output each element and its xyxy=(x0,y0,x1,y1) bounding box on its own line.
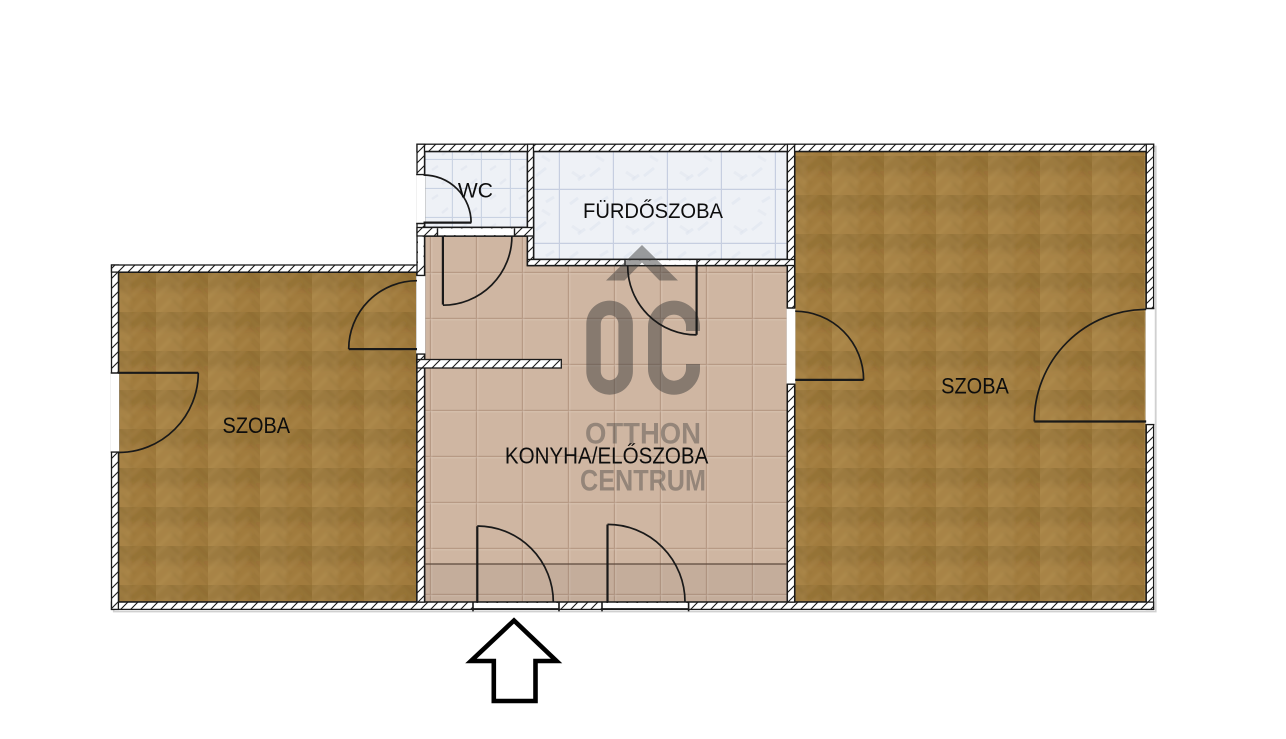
svg-text:FÜRDŐSZOBA: FÜRDŐSZOBA xyxy=(583,198,723,223)
svg-text:SZOBA: SZOBA xyxy=(941,373,1009,398)
svg-text:SZOBA: SZOBA xyxy=(223,413,291,438)
svg-text:KONYHA/ELŐSZOBA: KONYHA/ELŐSZOBA xyxy=(505,442,709,468)
svg-text:WC: WC xyxy=(458,179,493,203)
svg-text:CENTRUM: CENTRUM xyxy=(580,465,706,498)
